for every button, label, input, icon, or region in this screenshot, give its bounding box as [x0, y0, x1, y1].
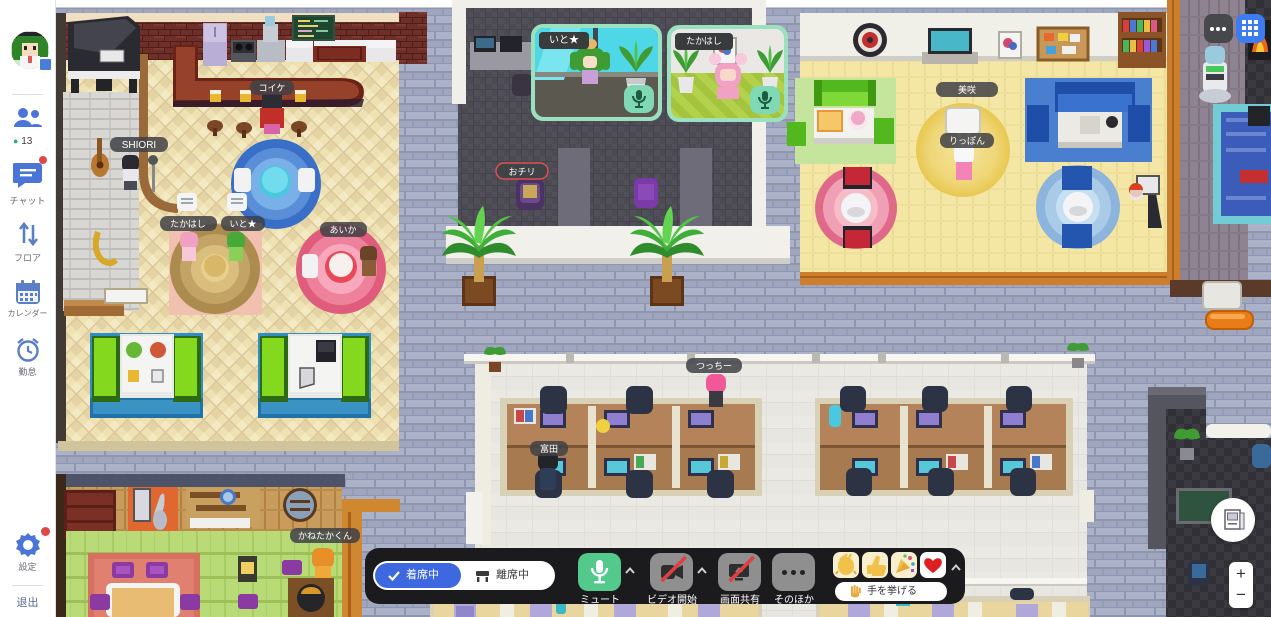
svg-text:いと★: いと★: [229, 219, 256, 229]
svg-text:あいか: あいか: [329, 225, 356, 235]
svg-text:おチリ: おチリ: [508, 167, 535, 177]
svg-text:かねたかくん: かねたかくん: [298, 531, 352, 541]
svg-text:富田: 富田: [540, 443, 558, 454]
svg-text:美咲: 美咲: [958, 84, 976, 95]
svg-text:つっちー: つっちー: [696, 361, 732, 371]
svg-text:SHIORI: SHIORI: [122, 140, 156, 151]
svg-text:たかはし: たかはし: [170, 219, 206, 229]
svg-text:コイケ: コイケ: [258, 83, 285, 93]
svg-text:りっぽん: りっぽん: [949, 136, 985, 146]
